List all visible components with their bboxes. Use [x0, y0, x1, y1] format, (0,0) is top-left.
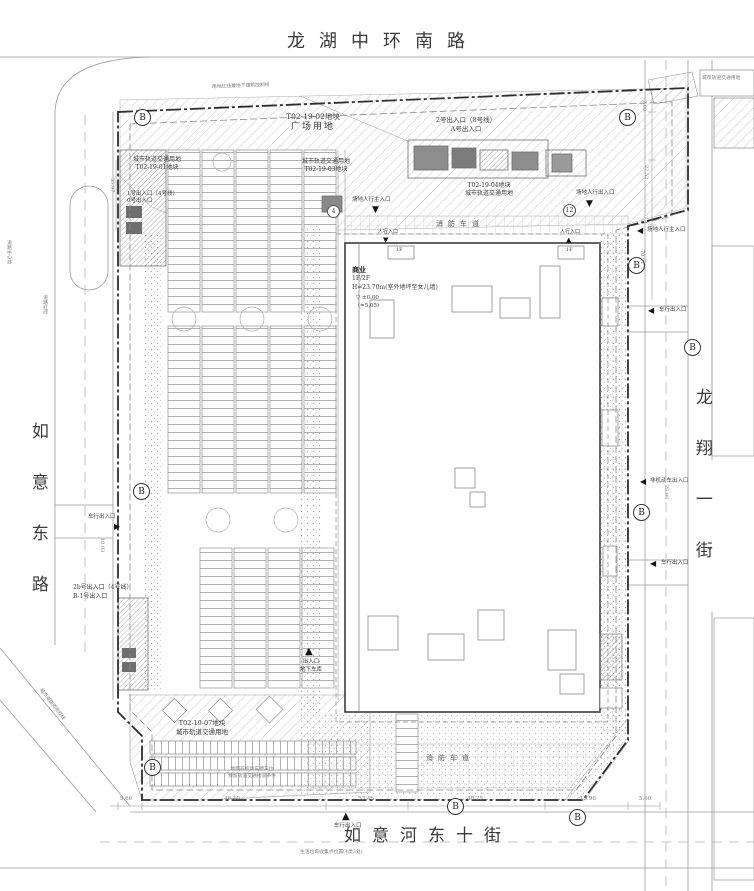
metro-entrance-2-line2: A号出入口 [451, 126, 482, 133]
nonmotor-entrance-label: 非机动车出入口 [650, 479, 689, 485]
section-marker: B [569, 809, 586, 826]
vehicle-entrance-left-label: 车行出入口 [88, 515, 116, 521]
section-marker: B [684, 339, 701, 356]
trash-point-note: 生活垃圾收集点位置(4类3处) [300, 850, 363, 855]
garage-entrance-label2: 地下车库 [300, 668, 322, 674]
dimension-text: 35.97 [109, 178, 114, 192]
fire-lane-label-bottom: 消防车道 [426, 755, 474, 762]
dimension-text: 70.91 [639, 250, 644, 264]
section-marker: B [134, 109, 151, 126]
entrance-arrow-left-icon: ◀ [650, 560, 656, 568]
street-name-right: 龙翔一街 [692, 388, 710, 592]
road-centerline-note: 道路中心线 [6, 240, 11, 264]
parcel-metro03-use: 城市轨道交通用地 [302, 159, 350, 165]
entrance-arrow-left-icon: ◀ [640, 478, 646, 486]
vehicle-entrance-bottom-label: 车行出入口 [334, 824, 362, 830]
site-plan: 龙湖中环南路 如意东路 龙翔一街 如意河东十街 T02-19-02地块 广场用地… [0, 0, 754, 891]
metro-entrance-1-line2: 0号出入口 [127, 199, 153, 205]
entrance-arrow-down-icon: ▼ [383, 237, 388, 244]
building-floor-tag: 1F [566, 248, 573, 253]
entrance-arrow-right-icon: ▶ [114, 523, 120, 531]
dimension-text: 75.06 [663, 485, 668, 499]
dimension-text: 5.00 [639, 797, 651, 803]
entrance-arrow-down-icon: ▼ [586, 200, 593, 209]
dimension-text: 48.25 [467, 797, 483, 803]
right-parcel-note: 城市轨道交通用地 [702, 76, 740, 81]
building-elevation-label: (=5.05) [358, 304, 379, 310]
parcel-metro04-use: 城市轨道交通用地 [465, 191, 513, 197]
section-marker: B [447, 798, 464, 815]
dimension-text: 46.40 [224, 797, 240, 803]
vehicle-entrance-right2-label: 车行出入口 [661, 561, 689, 567]
dimension-text: 7.00 [641, 100, 646, 111]
entrance-arrow-down-icon: ▼ [372, 206, 379, 215]
parcel-plaza-code: T02-19-02地块 [286, 113, 340, 121]
building-floor-tag: 1F [396, 248, 403, 253]
building-level-label: ▽ ±0.00 [356, 296, 379, 302]
metro-entrance-2-line1: 2号出入口（8号线） [436, 117, 496, 124]
section-marker: B [619, 109, 636, 126]
parking-note-line1: 地面非机动车停车位 [230, 767, 273, 772]
parcel-metro07-use: 城市轨道交通用地 [176, 729, 228, 736]
parcel-metro01-code: T02-19-01地块 [136, 165, 179, 171]
section-marker: B [144, 759, 161, 776]
street-name-left: 如意东路 [28, 422, 46, 626]
entrance-arrow-up-icon: ▲ [305, 647, 313, 657]
dimension-text: 10.93 [99, 538, 104, 552]
fire-lane-label-top: 消防车道 [436, 221, 484, 228]
building-floors-label: 1F/2F [352, 276, 370, 282]
ped-main-entrance-top-label: 场地人行主入口 [352, 198, 391, 204]
parcel-plaza-use: 广场用地 [291, 123, 335, 132]
metro-entrance-2b-line1: 2b号出入口（4号线） [73, 585, 132, 591]
dimension-text: 53.46 [358, 797, 374, 803]
building-height-label: H=23.70m(室外地坪至女儿墙) [352, 285, 438, 291]
entrance-arrow-up-icon: ▲ [566, 237, 571, 244]
vehicle-entrance-right1-label: 车行出入口 [659, 308, 687, 314]
building-use-label: 商业 [352, 266, 366, 273]
parcel-metro01-use: 城市轨道交通用地 [133, 157, 181, 163]
node-marker-4: 4 [327, 205, 340, 218]
section-marker: B [633, 504, 650, 521]
metro-entrance-1-line1: 1号出入口（4号线） [127, 192, 178, 198]
street-name-top: 龙湖中环南路 [287, 33, 479, 52]
dimension-text: 22.52 [643, 165, 648, 179]
parcel-metro03-code: T02-19-03地块 [305, 167, 348, 173]
parcel-metro04-code: T02-19-04地块 [468, 183, 511, 189]
ped-entrance-right-label: 人行入口 [560, 230, 580, 235]
node-marker-12: 12 [563, 204, 576, 217]
road-redline-note: 道路红线 [42, 295, 47, 314]
ped-main-entrance-right-label: 场地人行主入口 [647, 228, 686, 234]
street-name-bottom: 如意河东十街 [344, 828, 512, 846]
garage-entrance-label1: 出入口 [303, 660, 320, 666]
entrance-arrow-left-icon: ◀ [637, 227, 643, 235]
entrance-arrow-up-icon: ▲ [342, 812, 350, 822]
parking-note-line2: 预留轨道交通接驳条件 [228, 774, 276, 779]
entrance-arrow-left-icon: ◀ [648, 307, 654, 315]
metro-entrance-2b-line2: B-1号出入口 [73, 594, 107, 600]
dimension-text: 15.96 [580, 797, 596, 803]
ped-entrance-left-label: 人行入口 [378, 230, 398, 235]
ped-entrance-top-right-label: 场地人行出入口 [576, 191, 615, 197]
section-marker: B [133, 483, 150, 500]
dimension-text: 5.66 [120, 797, 132, 803]
site-plan-linework [0, 0, 754, 891]
parcel-metro07-code: T02-19-07地块 [179, 720, 226, 727]
